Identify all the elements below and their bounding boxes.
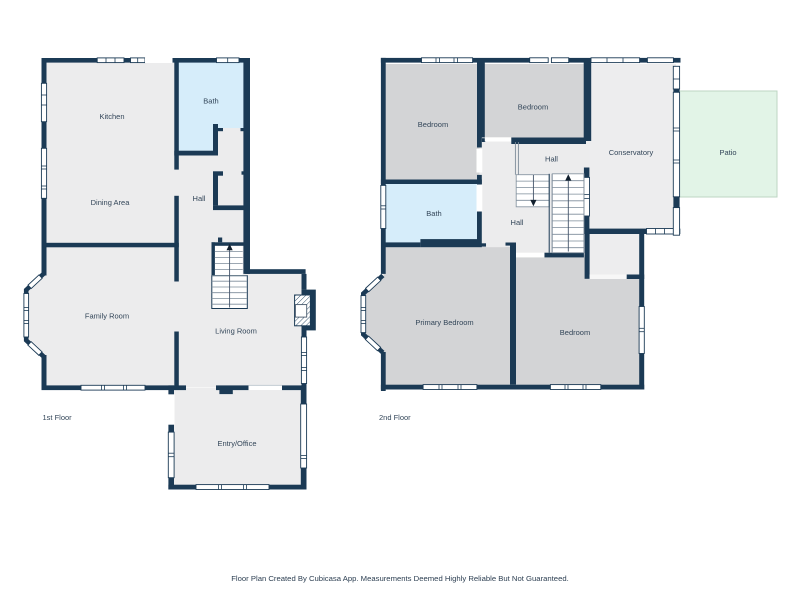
svg-text:Family Room: Family Room (85, 312, 129, 321)
svg-text:Bedroom: Bedroom (560, 328, 590, 337)
svg-text:Conservatory: Conservatory (609, 148, 654, 157)
svg-text:Hall: Hall (511, 218, 524, 227)
svg-text:1st Floor: 1st Floor (43, 413, 73, 422)
svg-text:Bedroom: Bedroom (418, 120, 448, 129)
svg-text:Hall: Hall (193, 194, 206, 203)
svg-text:Patio: Patio (719, 148, 736, 157)
svg-text:Kitchen: Kitchen (99, 112, 124, 121)
svg-text:Hall: Hall (545, 155, 558, 164)
svg-text:Bath: Bath (426, 209, 441, 218)
svg-text:Bedroom: Bedroom (518, 103, 548, 112)
svg-text:Dining Area: Dining Area (91, 198, 131, 207)
svg-text:Floor Plan Created By Cubicasa: Floor Plan Created By Cubicasa App. Meas… (231, 574, 569, 583)
svg-text:Living Room: Living Room (215, 327, 257, 336)
svg-text:Bath: Bath (203, 97, 218, 106)
svg-text:Entry/Office: Entry/Office (217, 439, 256, 448)
svg-text:2nd Floor: 2nd Floor (379, 413, 411, 422)
svg-text:Primary Bedroom: Primary Bedroom (415, 318, 473, 327)
